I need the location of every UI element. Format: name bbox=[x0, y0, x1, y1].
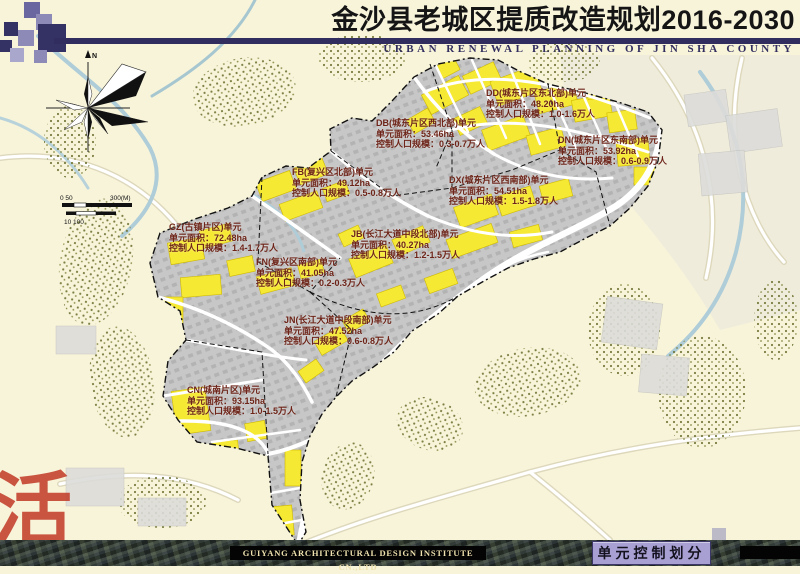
footer: GUIYANG ARCHITECTURAL DESIGN INSTITUTE C… bbox=[0, 540, 800, 566]
planning-poster: N 0 50 300(M) 10 100 bbox=[0, 0, 800, 566]
footer-right-bar bbox=[740, 546, 800, 559]
unit-code: DB(城东片区西北部)单元 bbox=[376, 118, 485, 129]
unit-area: 单元面积：47.52ha bbox=[284, 326, 393, 337]
unit-label-dx: DX(城东片区西南部)单元 单元面积：54.51ha 控制人口规模：1.5-1.… bbox=[449, 175, 558, 207]
unit-population: 控制人口规模：0.6-0.9万人 bbox=[558, 156, 667, 167]
unit-population: 控制人口规模：1.5-1.8万人 bbox=[449, 196, 558, 207]
page-title: 金沙县老城区提质改造规划2016-2030 bbox=[331, 4, 795, 36]
unit-code: FB(复兴区北部)单元 bbox=[292, 167, 401, 178]
unit-area: 单元面积：41.05ha bbox=[256, 268, 365, 279]
unit-label-dd: DD(城东片区东北部)单元 单元面积：48.20ha 控制人口规模：1.0-1.… bbox=[486, 88, 595, 120]
unit-label-jb: JB(长江大道中段北部)单元 单元面积：40.27ha 控制人口规模：1.2-1… bbox=[351, 229, 460, 261]
unit-population: 控制人口规模：1.2-1.5万人 bbox=[351, 250, 460, 261]
unit-code: DN(城东片区东南部)单元 bbox=[558, 135, 667, 146]
unit-population: 控制人口规模：0.2-0.3万人 bbox=[256, 278, 365, 289]
unit-population: 控制人口规模：1.4-1.7万人 bbox=[169, 243, 278, 254]
unit-population: 控制人口规模：1.0-1.5万人 bbox=[187, 406, 296, 417]
unit-code: DD(城东片区东北部)单元 bbox=[486, 88, 595, 99]
unit-label-jn: JN(长江大道中段南部)单元 单元面积：47.52ha 控制人口规模：0.6-0… bbox=[284, 315, 393, 347]
unit-population: 控制人口规模：0.6-0.8万人 bbox=[284, 336, 393, 347]
unit-area: 单元面积：49.12ha bbox=[292, 178, 401, 189]
sheet-title-tag: 单元控制划分 bbox=[592, 541, 711, 565]
scale-label-right: 300(M) bbox=[110, 195, 131, 202]
unit-area: 单元面积：53.92ha bbox=[558, 146, 667, 157]
header: 金沙县老城区提质改造规划2016-2030 URBAN RENEWAL PLAN… bbox=[331, 4, 795, 55]
unit-population: 控制人口规模：1.0-1.6万人 bbox=[486, 109, 595, 120]
unit-label-cn: CN(城南片区)单元 单元面积：93.15ha 控制人口规模：1.0-1.5万人 bbox=[187, 385, 296, 417]
unit-code: JN(长江大道中段南部)单元 bbox=[284, 315, 393, 326]
unit-area: 单元面积：53.46ha bbox=[376, 129, 485, 140]
unit-code: GZ(古镇片区)单元 bbox=[169, 222, 278, 233]
unit-label-gz: GZ(古镇片区)单元 单元面积：72.48ha 控制人口规模：1.4-1.7万人 bbox=[169, 222, 278, 254]
unit-code: JB(长江大道中段北部)单元 bbox=[351, 229, 460, 240]
unit-code: FN(复兴区南部)单元 bbox=[256, 257, 365, 268]
unit-label-db: DB(城东片区西北部)单元 单元面积：53.46ha 控制人口规模：0.3-0.… bbox=[376, 118, 485, 150]
institute-bar: GUIYANG ARCHITECTURAL DESIGN INSTITUTE C… bbox=[230, 546, 486, 560]
unit-area: 单元面积：93.15ha bbox=[187, 396, 296, 407]
scale-label-bottom: 10 100 bbox=[64, 219, 84, 226]
unit-code: CN(城南片区)单元 bbox=[187, 385, 296, 396]
unit-label-fb: FB(复兴区北部)单元 单元面积：49.12ha 控制人口规模：0.5-0.8万… bbox=[292, 167, 401, 199]
unit-population: 控制人口规模：0.5-0.8万人 bbox=[292, 188, 401, 199]
map-canvas: N 0 50 300(M) 10 100 bbox=[0, 0, 800, 566]
unit-area: 单元面积：40.27ha bbox=[351, 240, 460, 251]
page-subtitle: URBAN RENEWAL PLANNING OF JIN SHA COUNTY bbox=[331, 43, 795, 55]
unit-area: 单元面积：54.51ha bbox=[449, 186, 558, 197]
unit-code: DX(城东片区西南部)单元 bbox=[449, 175, 558, 186]
unit-population: 控制人口规模：0.3-0.7万人 bbox=[376, 139, 485, 150]
compass-north-label: N bbox=[92, 53, 97, 60]
unit-label-fn: FN(复兴区南部)单元 单元面积：41.05ha 控制人口规模：0.2-0.3万… bbox=[256, 257, 365, 289]
unit-area: 单元面积：72.48ha bbox=[169, 233, 278, 244]
unit-area: 单元面积：48.20ha bbox=[486, 99, 595, 110]
unit-label-dn: DN(城东片区东南部)单元 单元面积：53.92ha 控制人口规模：0.6-0.… bbox=[558, 135, 667, 167]
scale-label-left: 0 50 bbox=[60, 195, 73, 202]
